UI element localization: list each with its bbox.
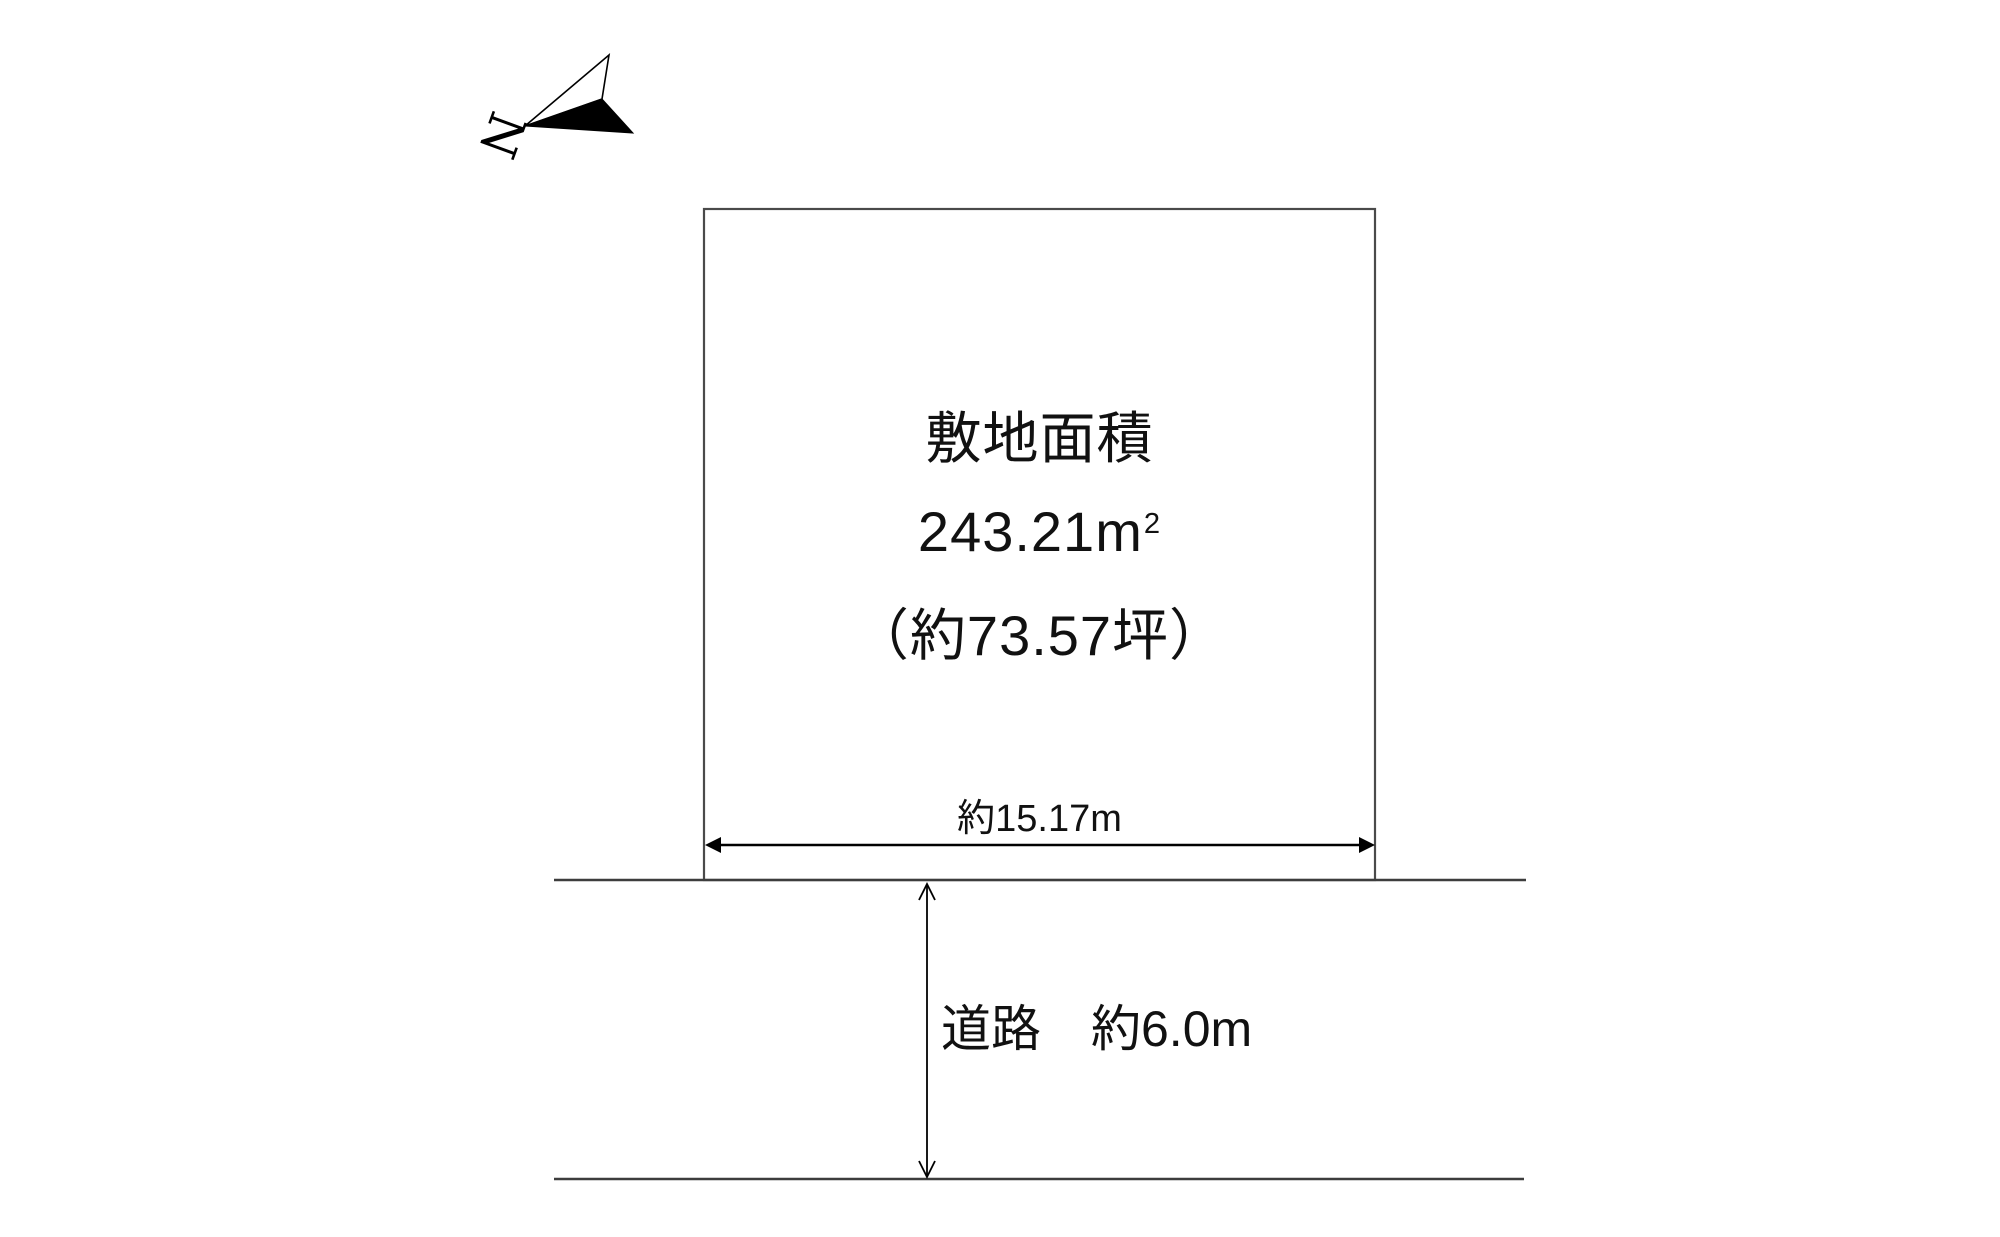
site-area-value-line: 243.21m2 [704,485,1375,589]
width-dimension-label: 約15.17m [704,799,1375,839]
site-area-title: 敷地面積 [704,392,1375,485]
site-area-unit: m [1095,500,1143,563]
road-label: 道路 約6.0m [941,1002,1252,1056]
site-area-unit-exponent: 2 [1144,478,1161,571]
road-width-dimension-arrow [919,884,935,1177]
site-area-tsubo: （約73.57坪） [704,589,1375,682]
land-plot-diagram: N 敷地面積 243.21m2 （約73.57坪） 約15.17m 道路 約6.… [0,0,2000,1237]
site-area-value: 243.21 [918,500,1095,563]
width-arrowhead-left [705,837,721,853]
north-arrow [525,55,633,133]
site-info-block: 敷地面積 243.21m2 （約73.57坪） [704,392,1375,682]
width-arrowhead-right [1359,837,1375,853]
